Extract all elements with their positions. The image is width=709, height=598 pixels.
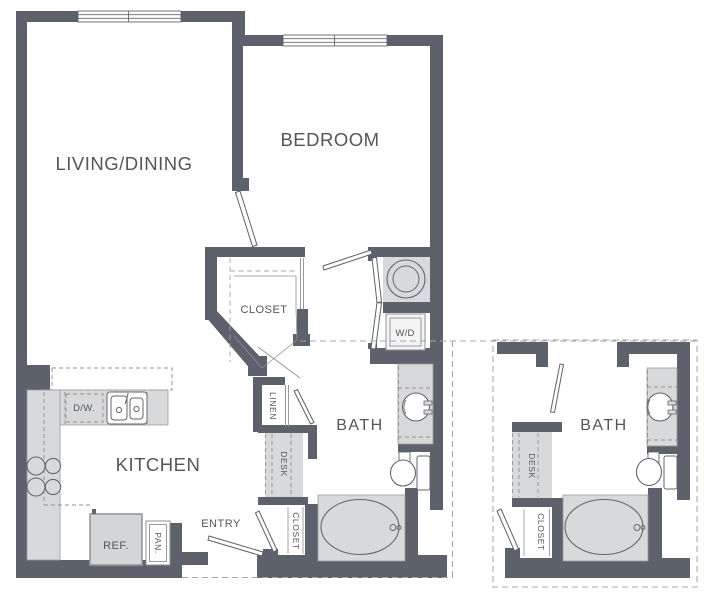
door-bifold <box>372 258 382 303</box>
wall <box>368 247 443 257</box>
bath-sink-icon <box>403 393 430 421</box>
tub-deck <box>318 495 405 561</box>
wall <box>648 488 662 563</box>
wall <box>305 504 318 563</box>
entry-label: ENTRY <box>201 518 241 530</box>
washer-dryer-label: W/D <box>395 328 414 339</box>
faucet-icon <box>424 401 432 405</box>
closet-details <box>230 258 304 554</box>
wall <box>405 488 418 563</box>
wall <box>617 354 629 367</box>
inset-sink-icon <box>647 393 673 421</box>
floor-plan-drawing: LIVING/DINING BEDROOM KITCHEN CLOSET W/D… <box>0 0 709 598</box>
floor-plan-page: LIVING/DINING BEDROOM KITCHEN CLOSET W/D… <box>0 0 709 598</box>
pantry-label: PAN. <box>153 532 163 554</box>
inset-door-bath <box>551 364 564 413</box>
door-bedroom <box>323 250 372 270</box>
wall <box>308 425 317 459</box>
wall <box>16 365 50 392</box>
living-dining-label: LIVING/DINING <box>55 153 192 174</box>
washer-box <box>383 257 430 302</box>
wall <box>232 22 243 182</box>
inset-toilet-bowl-icon <box>637 459 662 486</box>
faucet-icon <box>424 410 432 414</box>
window-bedroom <box>283 35 387 46</box>
wall <box>205 247 217 320</box>
desk-label: DESK <box>279 451 289 477</box>
wall <box>383 302 443 313</box>
wall <box>253 377 262 432</box>
bedroom-label: BEDROOM <box>280 129 379 150</box>
inset-tub-deck <box>563 495 648 561</box>
bath-label: BATH <box>336 417 383 434</box>
inset-door-closet <box>497 509 519 551</box>
kitchen-sink-icon <box>107 392 147 424</box>
inset-toilet-tank-icon <box>664 456 677 489</box>
inset-desk-label: DESK <box>527 453 537 479</box>
inset-faucet-icon <box>668 410 676 414</box>
dishwasher-label: D/W. <box>73 403 95 414</box>
inset-closet-label: CLOSET <box>536 513 546 551</box>
wall <box>536 342 548 367</box>
counter-top <box>43 390 168 425</box>
wall <box>232 178 249 191</box>
toilet-bowl-icon <box>391 460 416 486</box>
window-living <box>78 11 181 22</box>
wall <box>552 498 563 560</box>
door-bath-closet <box>256 511 278 552</box>
door-bifold <box>371 303 382 350</box>
wall <box>243 35 283 46</box>
wall <box>293 334 310 346</box>
wall <box>258 497 308 505</box>
refrigerator-handle <box>92 509 96 514</box>
upper-cabinet <box>52 368 172 390</box>
bath-closet-label: CLOSET <box>291 512 301 550</box>
wall <box>170 523 182 578</box>
wall <box>512 422 562 432</box>
door-living <box>236 191 258 247</box>
wall <box>16 11 27 578</box>
kitchen-label: KITCHEN <box>116 454 201 475</box>
wall <box>677 354 690 500</box>
refrigerator-label: REF. <box>103 540 129 552</box>
linen-label: LINEN <box>268 392 278 420</box>
toilet-tank-icon <box>417 456 430 490</box>
closet-label: CLOSET <box>240 304 287 316</box>
wall <box>182 552 208 565</box>
counter-left <box>27 390 60 560</box>
wall <box>398 444 433 452</box>
walls-main <box>16 11 447 578</box>
door-bath <box>294 390 314 425</box>
inset-faucet-icon <box>668 401 676 405</box>
inset-bath-label: BATH <box>580 417 627 434</box>
wall <box>205 247 305 257</box>
wall <box>512 498 552 507</box>
wall <box>617 342 690 354</box>
wall <box>258 425 308 433</box>
door-entry <box>208 536 263 556</box>
